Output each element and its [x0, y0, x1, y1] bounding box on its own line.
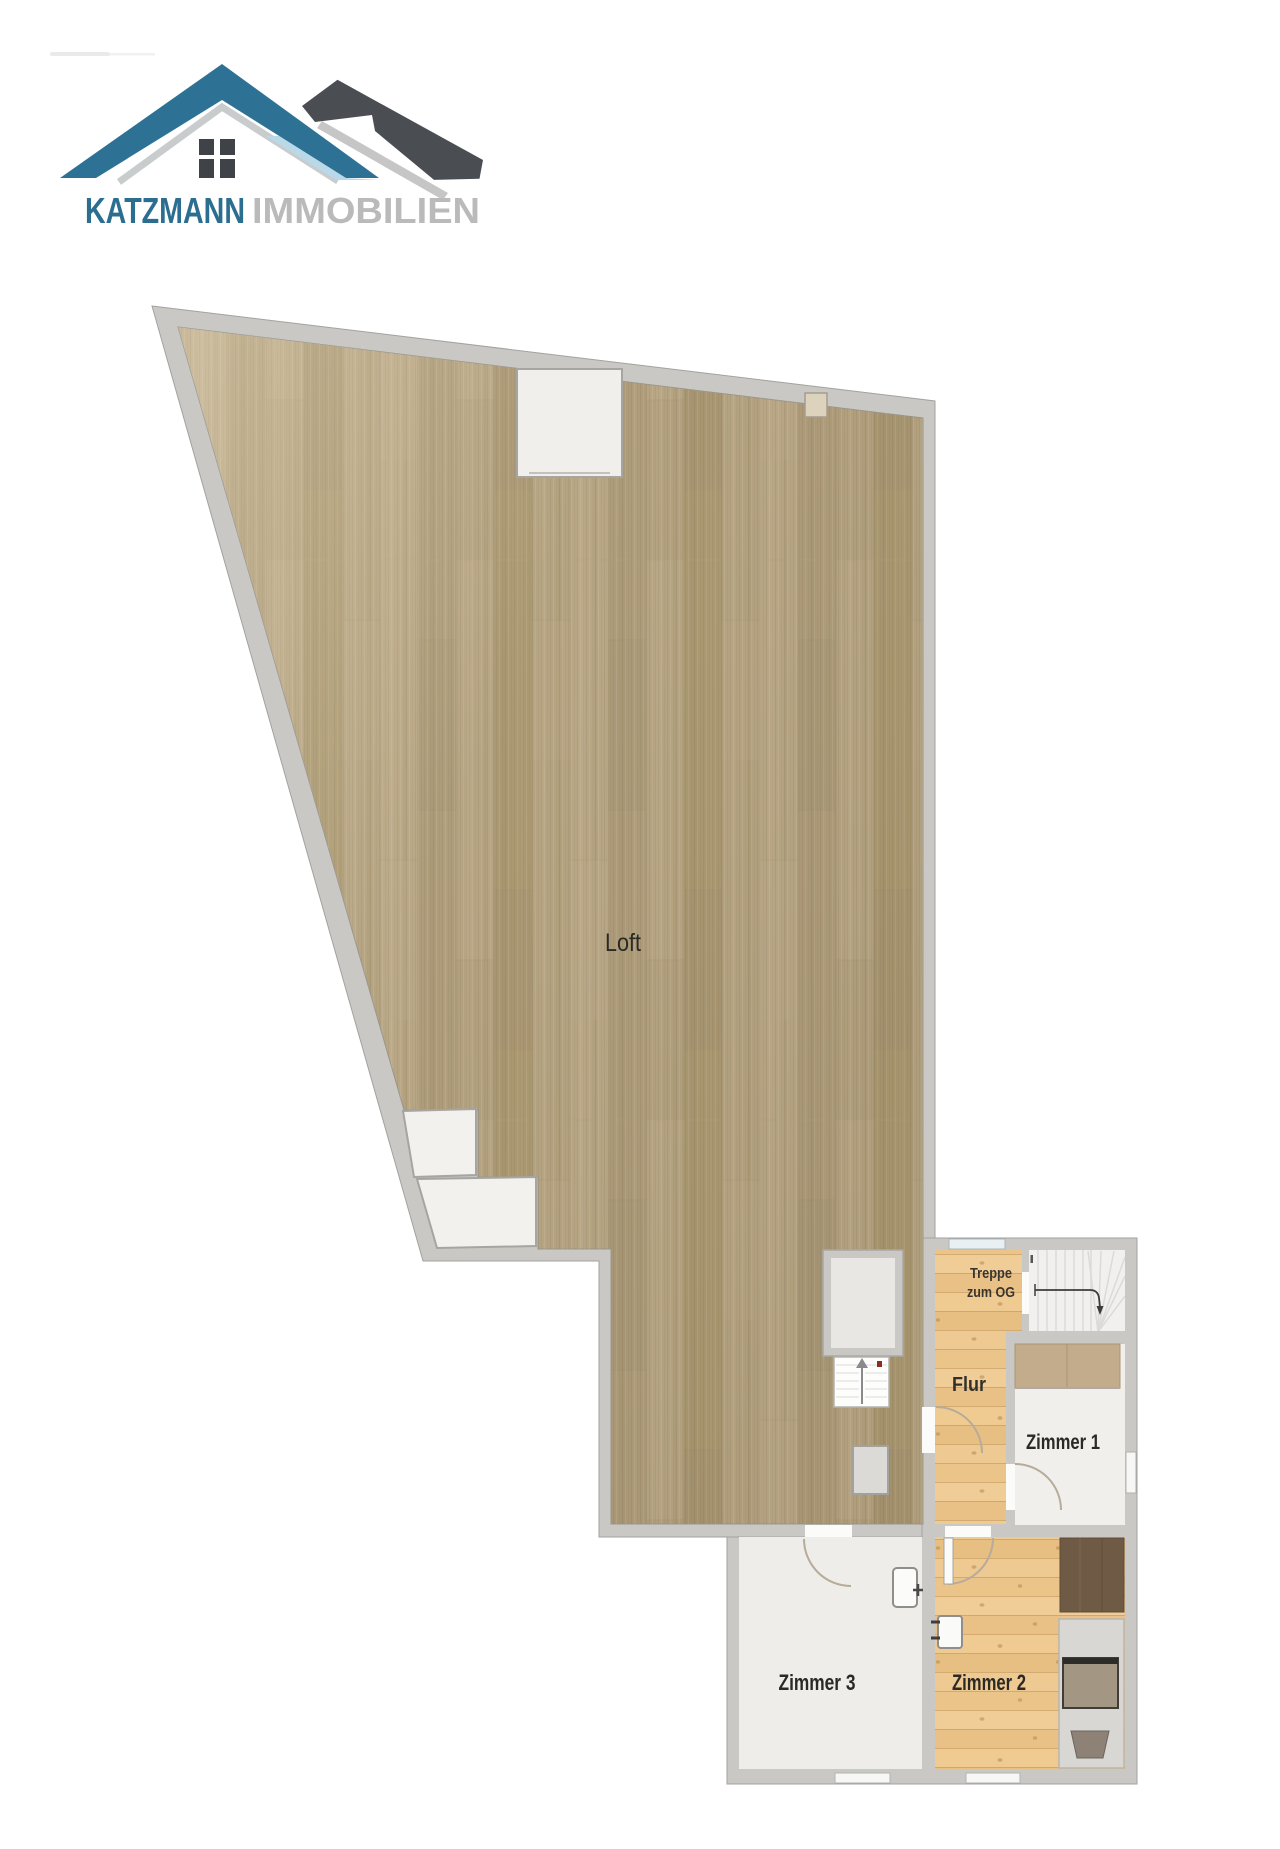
svg-text:zum OG: zum OG: [967, 1284, 1015, 1301]
svg-text:Zimmer 1: Zimmer 1: [1026, 1430, 1100, 1454]
svg-text:Zimmer 3: Zimmer 3: [779, 1670, 856, 1695]
svg-text:Loft: Loft: [605, 929, 641, 957]
svg-text:Treppe: Treppe: [970, 1265, 1012, 1282]
svg-text:IMMOBILIEN: IMMOBILIEN: [252, 190, 480, 231]
svg-text:Zimmer 2: Zimmer 2: [952, 1670, 1026, 1695]
svg-text:KATZMANN: KATZMANN: [85, 190, 245, 231]
svg-text:Flur: Flur: [952, 1374, 986, 1396]
